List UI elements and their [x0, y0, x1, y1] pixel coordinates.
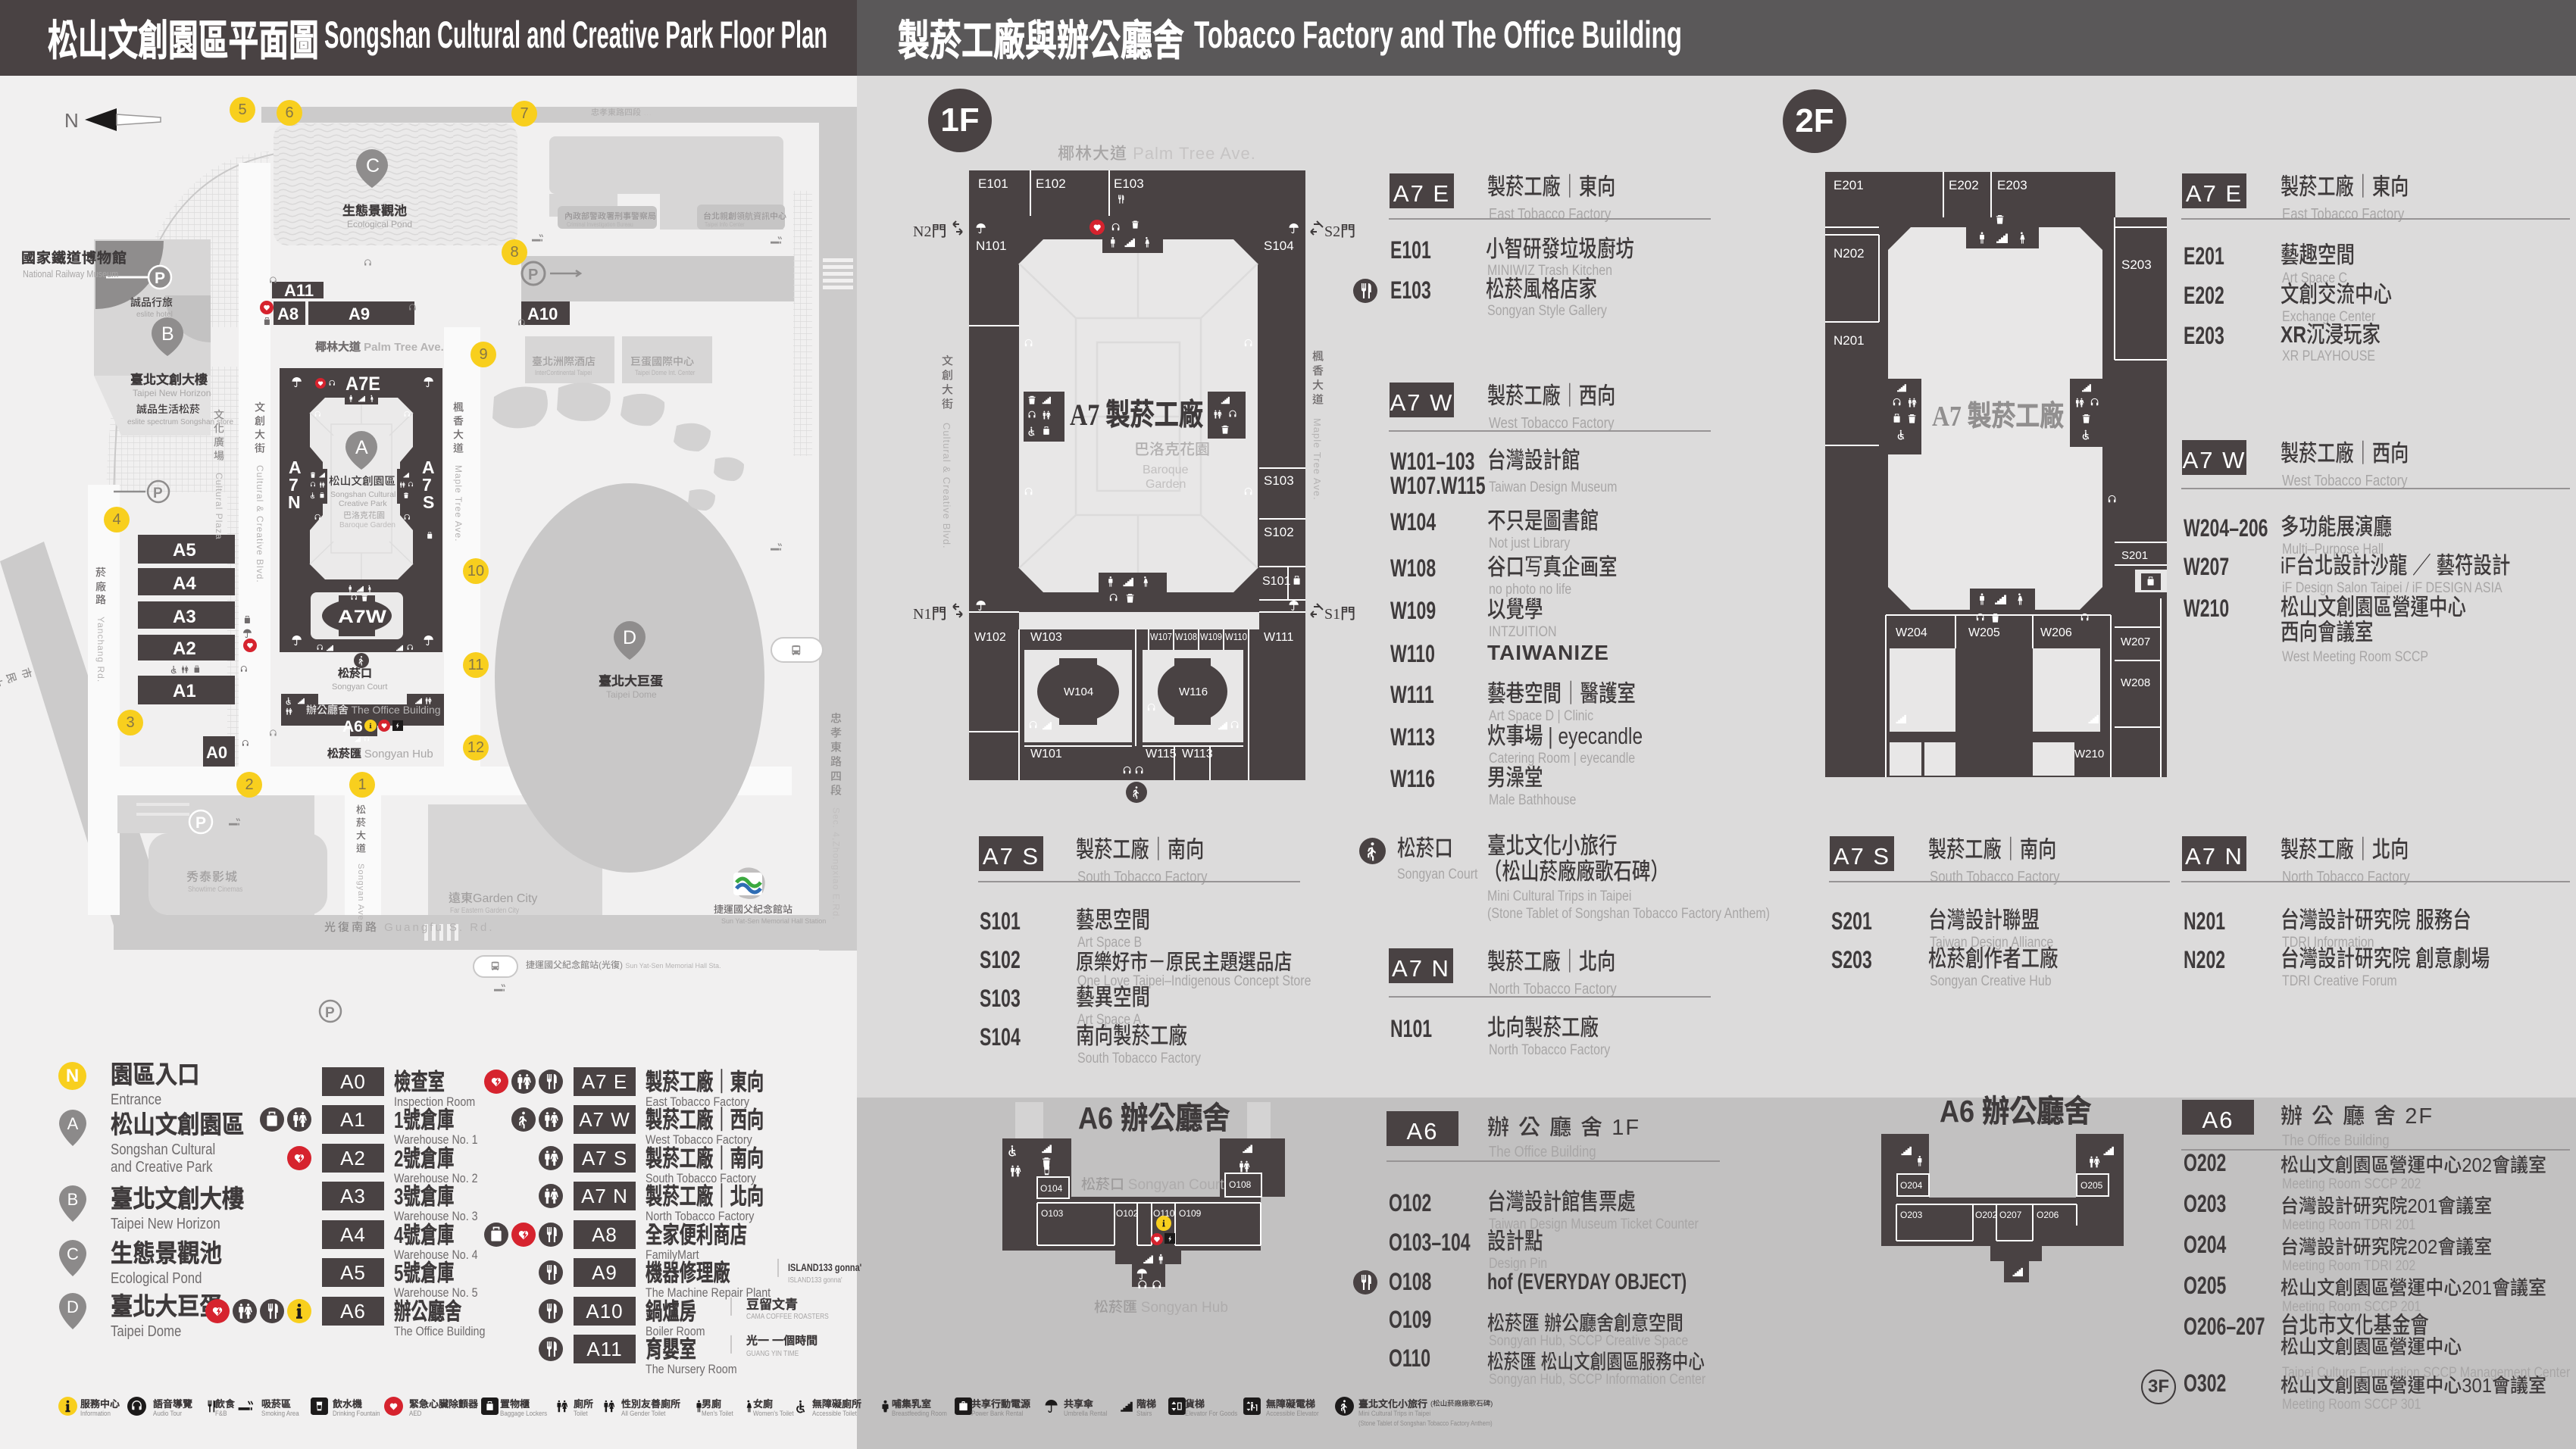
svg-text:Sun Yat-Sen Memorial Hall Stat: Sun Yat-Sen Memorial Hall Station: [721, 917, 826, 925]
svg-text:A3: A3: [173, 607, 196, 627]
svg-text:S103: S103: [1264, 473, 1294, 488]
svg-text:A6: A6: [342, 718, 363, 735]
svg-text:W113: W113: [1182, 748, 1213, 760]
svg-text:O203: O203: [1900, 1210, 1923, 1220]
svg-text:S: S: [423, 492, 434, 512]
svg-text:N: N: [64, 109, 79, 132]
svg-text:P: P: [325, 1005, 335, 1021]
svg-text:O102: O102: [1116, 1208, 1139, 1219]
svg-text:A11: A11: [284, 281, 314, 300]
svg-text:A9: A9: [349, 304, 370, 323]
svg-text:O204: O204: [1900, 1180, 1923, 1191]
svg-text:A1: A1: [173, 681, 196, 701]
svg-text:W207: W207: [2121, 635, 2150, 648]
svg-text:W104: W104: [1064, 685, 1093, 698]
svg-text:S203: S203: [2121, 258, 2152, 272]
svg-text:Taipei Dome: Taipei Dome: [606, 689, 657, 700]
svg-text:Baroque: Baroque: [1143, 464, 1189, 476]
svg-text:N2門: N2門: [913, 219, 946, 241]
svg-text:O206: O206: [2037, 1210, 2059, 1220]
svg-text:Taipei New Horizon: Taipei New Horizon: [133, 388, 211, 398]
svg-text:C: C: [366, 155, 380, 176]
svg-text:O207: O207: [1999, 1210, 2022, 1220]
svg-text:辦公廳舍 The Office Building: 辦公廳舍 The Office Building: [306, 702, 441, 717]
svg-text:W108: W108: [1175, 631, 1197, 642]
svg-text:W101: W101: [1030, 748, 1062, 760]
svg-text:O205: O205: [2080, 1180, 2103, 1191]
svg-text:W103: W103: [1030, 631, 1062, 644]
svg-text:松菸匯 Songyan Hub: 松菸匯 Songyan Hub: [327, 745, 433, 761]
svg-text:N101: N101: [976, 239, 1007, 253]
svg-text:E203: E203: [1997, 178, 2027, 192]
svg-text:S101: S101: [1262, 575, 1290, 588]
svg-text:W110: W110: [1225, 631, 1247, 642]
svg-text:W115: W115: [1146, 748, 1177, 760]
svg-text:W208: W208: [2121, 676, 2150, 689]
svg-text:巴洛克花園: 巴洛克花園: [1134, 437, 1210, 459]
svg-text:N: N: [288, 492, 301, 512]
svg-text:W205: W205: [1968, 626, 2000, 639]
svg-text:A: A: [355, 437, 368, 458]
svg-text:O104: O104: [1040, 1183, 1063, 1194]
svg-text:N1門: N1門: [913, 601, 946, 623]
svg-text:A: A: [67, 1114, 79, 1133]
svg-text:D: D: [67, 1298, 79, 1316]
svg-text:O108: O108: [1229, 1179, 1252, 1190]
svg-text:W107: W107: [1150, 631, 1172, 642]
svg-text:松山文創園區: 松山文創園區: [329, 473, 395, 489]
svg-text:松菸匯 Songyan Hub: 松菸匯 Songyan Hub: [1094, 1296, 1228, 1316]
svg-text:誠品行旅: 誠品行旅: [130, 295, 173, 310]
svg-text:松菸口: 松菸口: [338, 665, 372, 681]
svg-text:S201: S201: [2121, 549, 2148, 562]
svg-text:A0: A0: [206, 743, 227, 762]
svg-text:S2門: S2門: [1324, 219, 1355, 241]
svg-text:捷運國父紀念館站: 捷運國父紀念館站: [714, 901, 792, 916]
svg-text:B: B: [161, 323, 174, 345]
svg-text:P: P: [528, 267, 538, 283]
svg-text:O103: O103: [1041, 1208, 1064, 1219]
svg-text:S104: S104: [1264, 239, 1294, 253]
svg-text:W102: W102: [974, 631, 1006, 644]
svg-text:P: P: [153, 486, 163, 501]
svg-text:松菸口 Songyan Court: 松菸口 Songyan Court: [1081, 1173, 1224, 1194]
svg-text:E103: E103: [1114, 176, 1144, 191]
svg-text:臺北大巨蛋: 臺北大巨蛋: [599, 670, 664, 689]
svg-text:Garden: Garden: [1146, 478, 1186, 491]
svg-text:A10: A10: [527, 304, 558, 323]
svg-text:Ecological Pond: Ecological Pond: [347, 219, 412, 230]
svg-text:A7 製菸工廠: A7 製菸工廠: [1070, 390, 1204, 434]
svg-text:W111: W111: [1264, 631, 1294, 644]
svg-text:巴洛克花園: 巴洛克花園: [343, 509, 385, 521]
svg-text:A4: A4: [173, 573, 196, 594]
svg-text:O109: O109: [1179, 1208, 1202, 1219]
svg-text:E101: E101: [978, 176, 1008, 191]
svg-text:W206: W206: [2040, 626, 2072, 639]
svg-text:A8: A8: [277, 304, 299, 323]
svg-text:P: P: [155, 270, 165, 287]
svg-text:W116: W116: [1179, 685, 1208, 698]
svg-text:E202: E202: [1949, 178, 1979, 192]
svg-text:A5: A5: [173, 540, 196, 561]
svg-text:B: B: [67, 1190, 79, 1209]
svg-text:D: D: [623, 627, 636, 648]
svg-text:誠品生活松菸: 誠品生活松菸: [136, 401, 200, 417]
svg-text:eslite hotel: eslite hotel: [136, 311, 173, 319]
svg-text:A2: A2: [173, 639, 196, 659]
svg-text:W204: W204: [1896, 626, 1927, 639]
svg-text:E102: E102: [1036, 176, 1066, 191]
svg-text:A7W: A7W: [338, 607, 386, 627]
svg-text:P: P: [195, 814, 206, 832]
svg-text:W210: W210: [2074, 748, 2104, 760]
svg-text:N201: N201: [1834, 333, 1865, 348]
svg-text:O202: O202: [1975, 1210, 1998, 1220]
svg-text:Songyan Court: Songyan Court: [332, 682, 387, 692]
svg-text:W109: W109: [1200, 631, 1222, 642]
svg-text:E201: E201: [1834, 178, 1864, 192]
svg-text:A7E: A7E: [345, 373, 380, 395]
svg-text:S102: S102: [1264, 525, 1294, 539]
svg-text:生態景觀池: 生態景觀池: [342, 200, 407, 219]
svg-text:A7 製菸工廠: A7 製菸工廠: [1932, 392, 2065, 434]
svg-text:Creative Park: Creative Park: [339, 499, 387, 508]
svg-text:C: C: [67, 1244, 79, 1263]
svg-text:Baroque Garden: Baroque Garden: [339, 521, 395, 529]
svg-text:N202: N202: [1834, 246, 1865, 261]
svg-text:臺北文創大樓: 臺北文創大樓: [130, 369, 208, 388]
svg-text:S1門: S1門: [1324, 601, 1355, 623]
